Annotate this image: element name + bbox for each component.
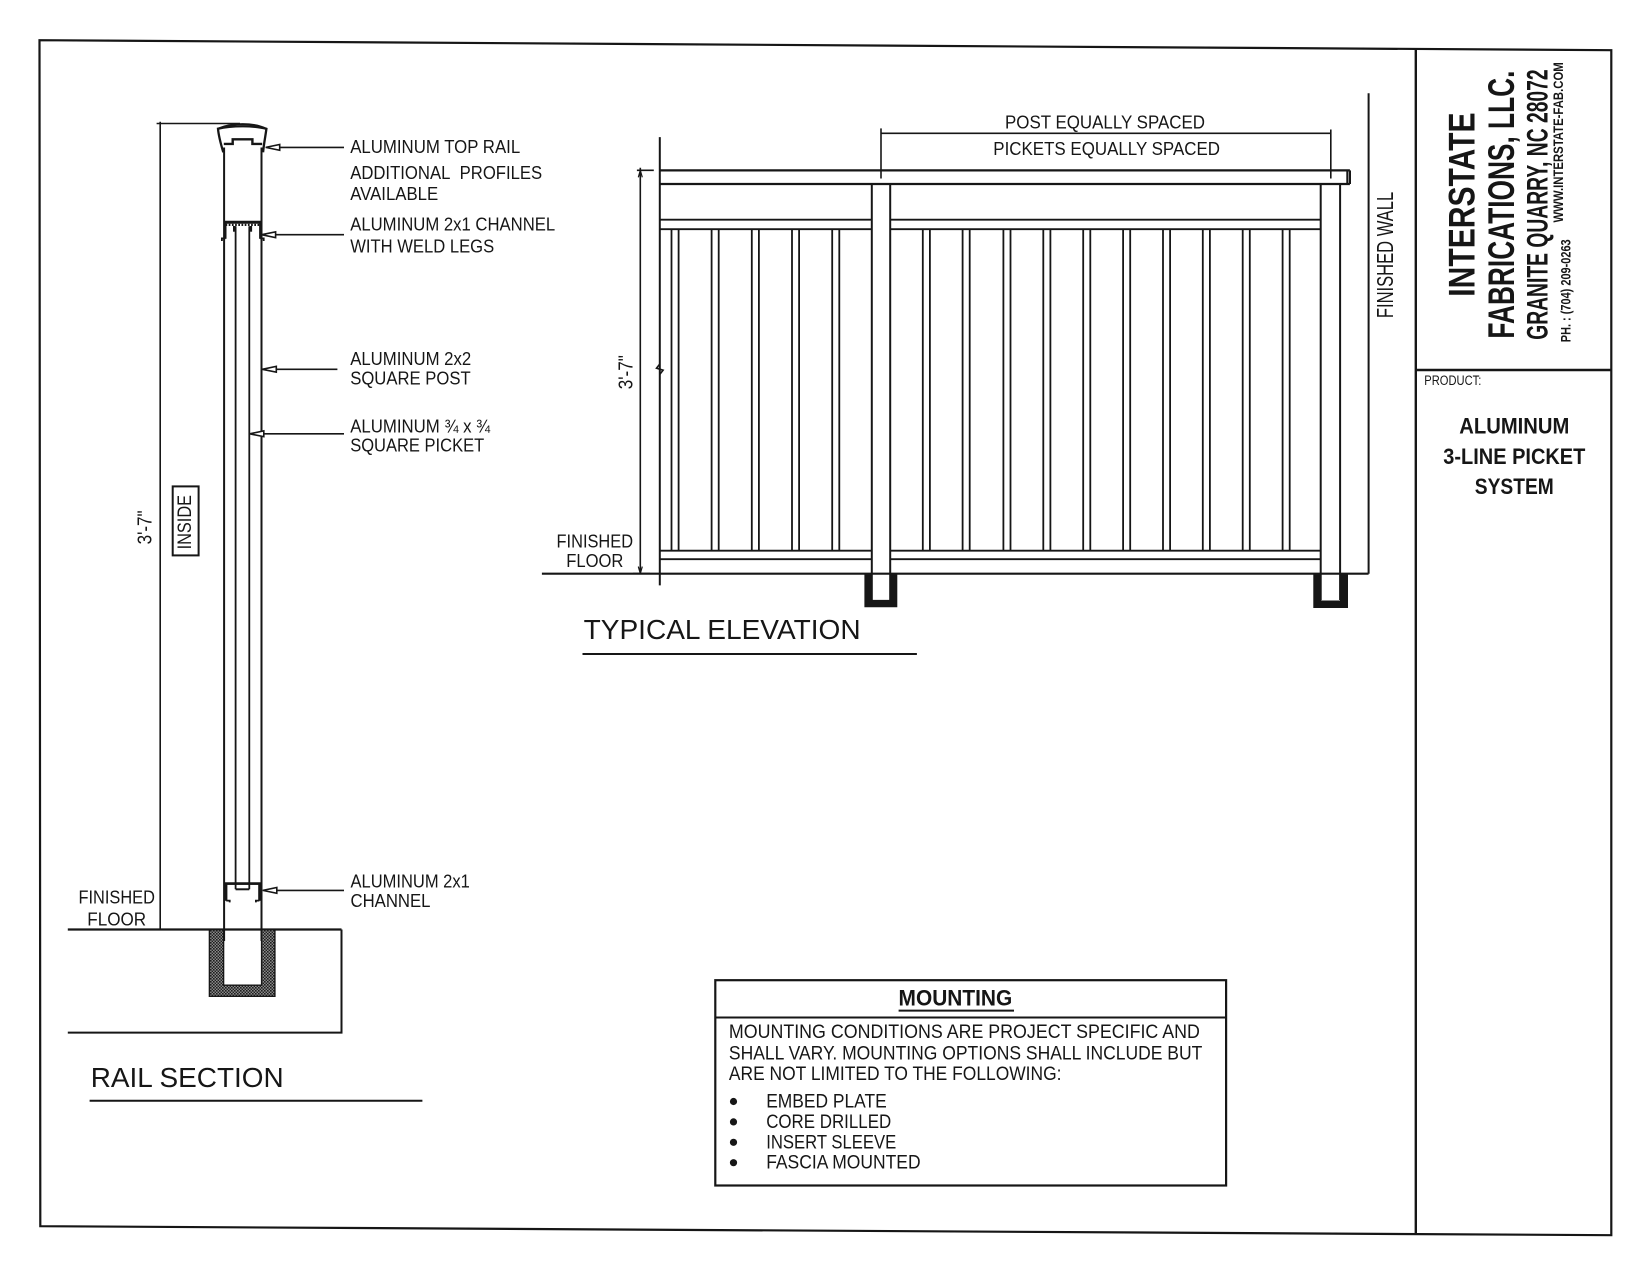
svg-text:MOUNTING: MOUNTING (899, 986, 1013, 1011)
svg-text:SYSTEM: SYSTEM (1475, 474, 1554, 499)
svg-text:FINISHED WALL: FINISHED WALL (1372, 192, 1398, 318)
svg-text:EMBED PLATE: EMBED PLATE (766, 1092, 887, 1113)
svg-text:POST EQUALLY SPACED: POST EQUALLY SPACED (1005, 111, 1205, 132)
svg-text:ALUMINUM 2x1: ALUMINUM 2x1 (351, 872, 470, 892)
svg-text:ARE NOT LIMITED TO THE FOLLOWI: ARE NOT LIMITED TO THE FOLLOWING: (729, 1064, 1062, 1085)
svg-text:3'-7": 3'-7" (135, 510, 157, 544)
svg-text:ALUMINUM 2x1 CHANNEL: ALUMINUM 2x1 CHANNEL (350, 214, 555, 234)
svg-text:ALUMINUM 2x2: ALUMINUM 2x2 (350, 349, 471, 369)
svg-text:ADDITIONAL PROFILES: ADDITIONAL PROFILES (350, 163, 542, 183)
svg-text:FINISHED: FINISHED (79, 888, 155, 908)
svg-text:FASCIA MOUNTED: FASCIA MOUNTED (766, 1153, 920, 1174)
svg-text:RAIL SECTION: RAIL SECTION (91, 1062, 284, 1093)
svg-text:FINISHED: FINISHED (557, 532, 634, 552)
svg-text:INSIDE: INSIDE (175, 495, 196, 549)
svg-text:ALUMINUM TOP RAIL: ALUMINUM TOP RAIL (350, 137, 520, 157)
svg-text:WITH WELD LEGS: WITH WELD LEGS (350, 236, 494, 256)
svg-text:FABRICATIONS, LLC.: FABRICATIONS, LLC. (1481, 71, 1522, 339)
svg-text:SQUARE POST: SQUARE POST (350, 368, 471, 388)
svg-text:FLOOR: FLOOR (87, 909, 146, 929)
svg-text:TYPICAL ELEVATION: TYPICAL ELEVATION (584, 614, 861, 645)
svg-text:INSERT SLEEVE: INSERT SLEEVE (766, 1132, 896, 1153)
svg-text:FLOOR: FLOOR (566, 551, 623, 571)
svg-text:MOUNTING CONDITIONS ARE PROJEC: MOUNTING CONDITIONS ARE PROJECT SPECIFIC… (729, 1022, 1200, 1043)
svg-text:CHANNEL: CHANNEL (351, 891, 431, 911)
svg-text:ALUMINUM ¾ x ¾: ALUMINUM ¾ x ¾ (350, 417, 491, 437)
svg-text:SQUARE PICKET: SQUARE PICKET (350, 436, 484, 456)
svg-text:3'-7": 3'-7" (616, 355, 638, 389)
svg-text:ALUMINUM: ALUMINUM (1459, 413, 1569, 438)
svg-text:PH. : (704) 209-0263: PH. : (704) 209-0263 (1558, 239, 1574, 342)
svg-text:WWW.INTERSTATE-FAB.COM: WWW.INTERSTATE-FAB.COM (1550, 62, 1566, 222)
svg-text:PICKETS EQUALLY SPACED: PICKETS EQUALLY SPACED (993, 138, 1220, 159)
svg-text:SHALL VARY. MOUNTING OPTIONS S: SHALL VARY. MOUNTING OPTIONS SHALL INCLU… (729, 1044, 1203, 1065)
svg-text:AVAILABLE: AVAILABLE (350, 184, 438, 204)
svg-text:3-LINE PICKET: 3-LINE PICKET (1443, 444, 1586, 469)
svg-text:CORE DRILLED: CORE DRILLED (766, 1112, 891, 1133)
svg-text:PRODUCT:: PRODUCT: (1424, 373, 1481, 388)
svg-text:INTERSTATE: INTERSTATE (1442, 112, 1483, 296)
